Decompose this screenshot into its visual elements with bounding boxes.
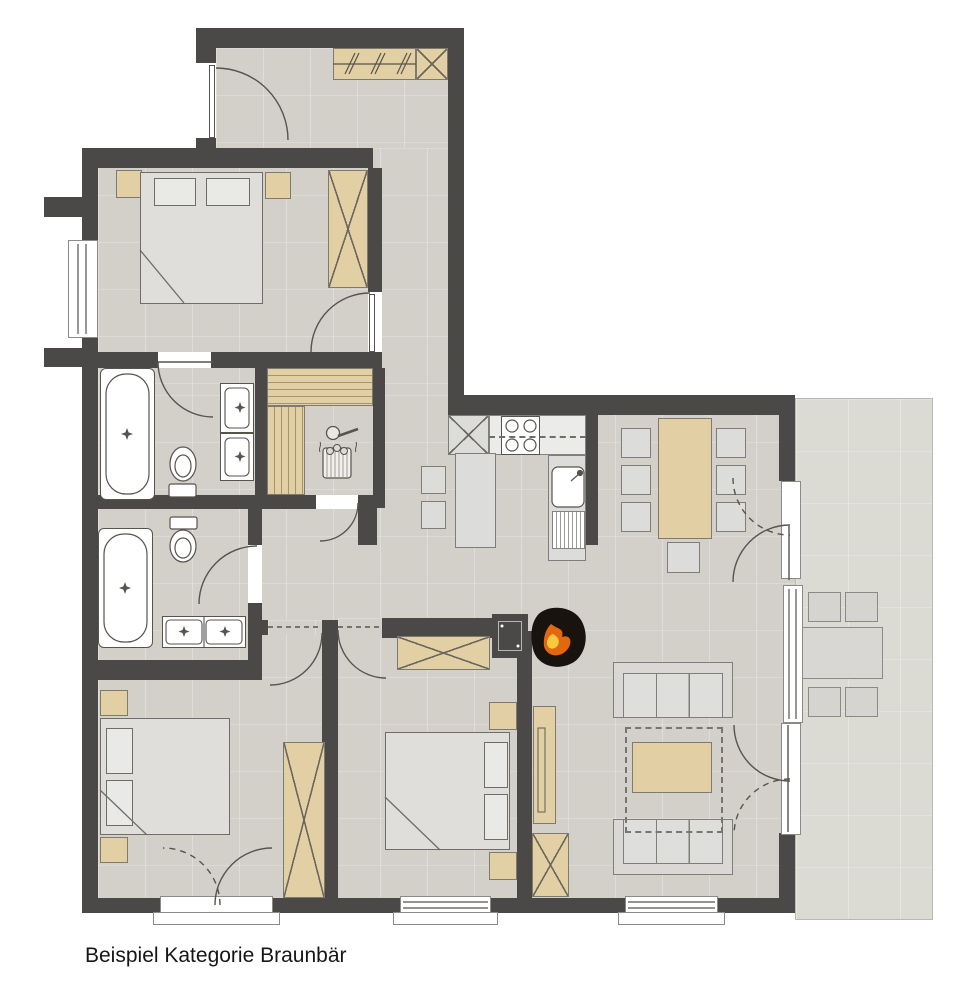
cabinet-living (532, 833, 569, 897)
pillow (106, 780, 133, 826)
window-bedroom1-left (68, 240, 98, 338)
dining-chair (621, 428, 651, 458)
bathroom2-door-opening (248, 545, 262, 603)
wall-bath1-top-b (211, 352, 382, 368)
wall-right-b (779, 833, 795, 905)
dining-table (658, 418, 712, 539)
kitchen-tall-unit (448, 415, 489, 455)
wardrobe-bedroom2 (397, 636, 490, 670)
wall-bedroom2-right (517, 640, 532, 898)
wardrobe-bedroom3 (283, 742, 325, 898)
wall-kitchen-top (448, 395, 795, 415)
wall-sauna-left (255, 368, 267, 508)
nightstand (489, 852, 517, 880)
wall-bedroom1-right-a (368, 168, 382, 292)
wall-hall-right (448, 28, 464, 415)
sauna-bench-top (267, 368, 373, 406)
entry-cabinet (416, 48, 448, 80)
pillow (484, 742, 508, 788)
pillow (206, 178, 250, 206)
kitchen-peninsula (455, 453, 496, 548)
pillow (106, 728, 133, 774)
terrace-chair (808, 592, 841, 622)
dining-chair (621, 502, 651, 532)
bedroom3-door-opening (268, 620, 322, 635)
wall-entry-top (196, 28, 462, 48)
floor-plan: Beispiel Kategorie Braunbär (0, 0, 970, 1000)
dining-chair (667, 542, 700, 573)
terrace-table (802, 627, 883, 679)
wall-bath2-right-a (248, 509, 262, 545)
wall-bottom-a (82, 898, 162, 913)
wall-left-a (82, 168, 98, 240)
kitchen-stool (421, 466, 446, 494)
entry-door-leaf (209, 65, 215, 138)
sauna-door-opening (316, 495, 358, 509)
dining-chair (716, 465, 746, 495)
nightstand (100, 837, 128, 863)
pillow (154, 178, 196, 206)
sofa-seats (623, 673, 723, 718)
dining-chair (716, 502, 746, 532)
terrace-chair (845, 592, 878, 622)
nightstand (265, 172, 291, 199)
tv-sideboard (533, 706, 556, 824)
bedroom1-door-leaf (369, 294, 375, 352)
sill-bedroom2 (393, 912, 498, 925)
terrace-chair (808, 687, 841, 717)
wall-bottom-c (491, 898, 625, 913)
pillow (484, 794, 508, 840)
plan-caption: Beispiel Kategorie Braunbär (85, 944, 347, 968)
coffee-table (632, 742, 712, 793)
dining-chair (716, 428, 746, 458)
sill-bedroom3 (153, 912, 280, 925)
kitchen-stool (421, 501, 446, 529)
bathroom1-door-opening (158, 352, 211, 368)
wall-bath1-top-a (82, 352, 158, 368)
wall-bedroom1-top (82, 148, 373, 168)
wall-left-b (82, 338, 98, 913)
wall-stub-upper (44, 197, 82, 217)
wall-bath2-bottom (82, 660, 253, 680)
wall-bottom-b (273, 898, 402, 913)
wall-bedroom2-top (382, 618, 492, 638)
bedroom2-door-opening (338, 618, 382, 638)
nightstand (489, 702, 517, 730)
wall-entry-left-a (196, 48, 216, 63)
wall-bottom-d (718, 898, 795, 913)
nightstand (100, 690, 128, 716)
terrace-door-living (781, 723, 801, 835)
vanity-sink (220, 433, 254, 481)
terrace-door-dining (781, 481, 801, 579)
terrace-chair (845, 687, 878, 717)
fireplace-flue-inner (498, 621, 522, 651)
wardrobe-bedroom1 (328, 170, 368, 288)
coat-rack (333, 48, 416, 80)
bathtub-2 (98, 528, 153, 648)
dining-chair (621, 465, 651, 495)
wall-corridor-bottom-a (248, 620, 268, 635)
vanity-double-sink (162, 616, 246, 648)
wall-right-a (779, 415, 795, 481)
sill-living (618, 912, 725, 925)
kitchen-drainboard (552, 511, 585, 549)
wall-sauna-right (373, 368, 385, 508)
wall-stub-lower (44, 348, 82, 367)
sauna-bench-left (267, 406, 305, 495)
vanity-sink (220, 383, 254, 433)
counter-overhang-line (489, 436, 586, 438)
wall-stub-corridor (358, 495, 377, 545)
fireplace-pipe (526, 631, 538, 643)
bathtub-1 (100, 368, 155, 500)
wall-kitchen-partition (586, 413, 598, 545)
window-terrace (783, 585, 803, 723)
nightstand (116, 170, 142, 198)
